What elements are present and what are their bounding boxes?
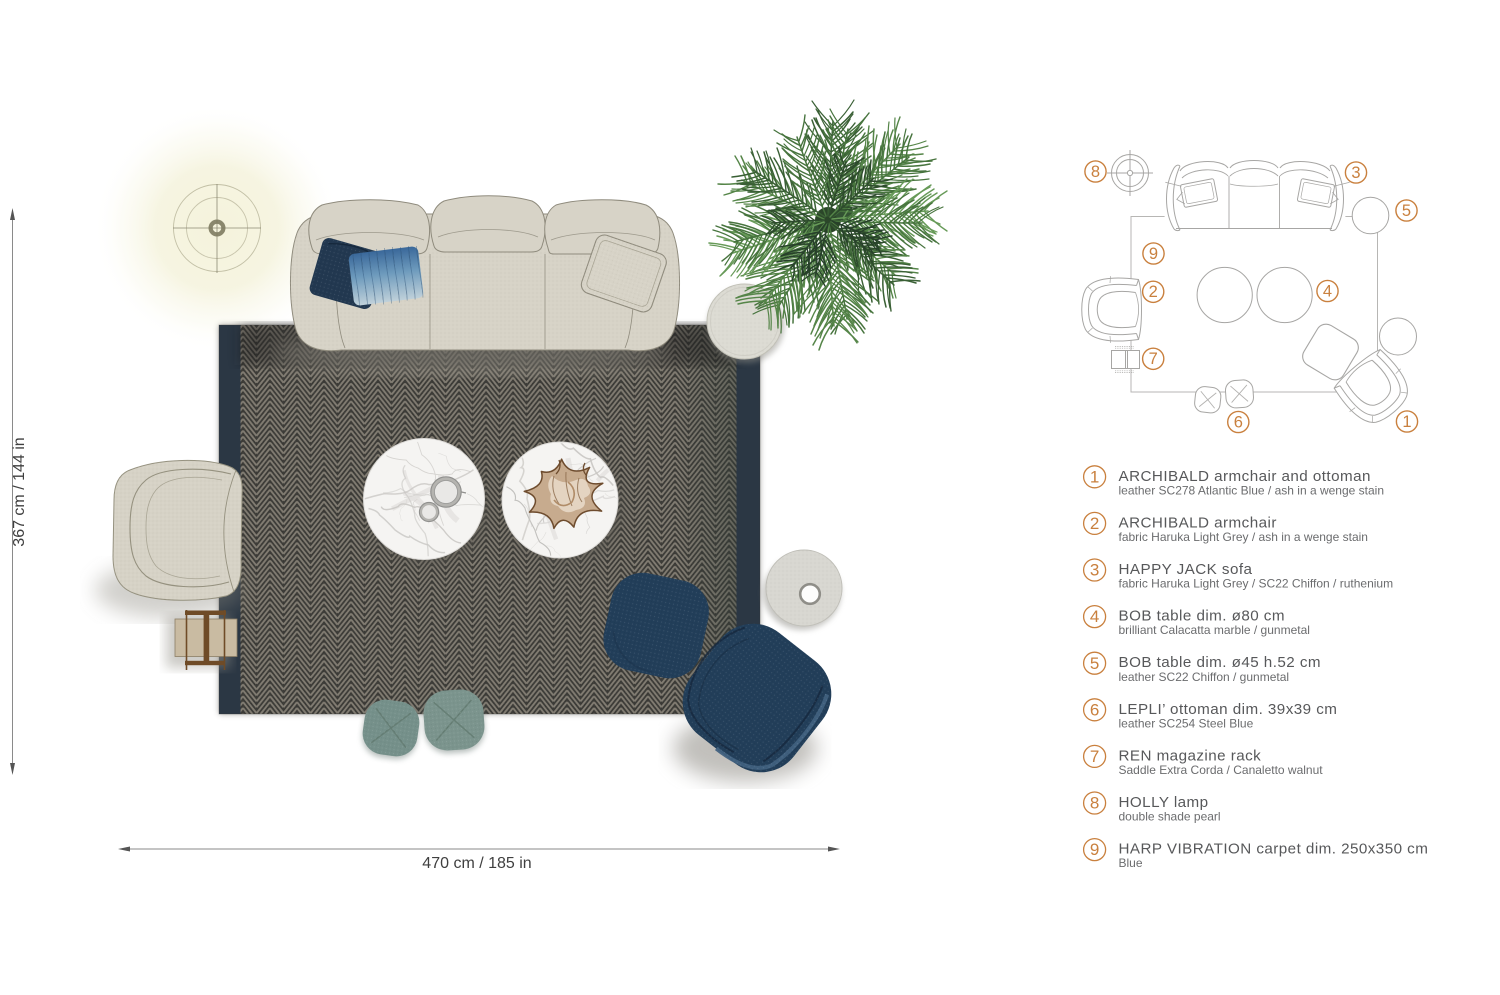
svg-text:367 cm / 144 in: 367 cm / 144 in	[11, 437, 28, 546]
svg-text:HARP VIBRATION carpet dim. 250: HARP VIBRATION carpet dim. 250x350 cm	[1119, 841, 1429, 858]
svg-text:ARCHIBALD armchair and ottoman: ARCHIBALD armchair and ottoman	[1119, 468, 1371, 485]
svg-text:4: 4	[1323, 282, 1332, 300]
svg-text:470 cm / 185 in: 470 cm / 185 in	[422, 855, 531, 872]
svg-text:7: 7	[1090, 747, 1099, 766]
svg-text:3: 3	[1090, 561, 1099, 580]
svg-text:1: 1	[1090, 467, 1099, 486]
svg-text:5: 5	[1090, 654, 1099, 673]
svg-text:brilliant Calacatta marble / g: brilliant Calacatta marble / gunmetal	[1119, 623, 1310, 637]
svg-text:ARCHIBALD armchair: ARCHIBALD armchair	[1119, 514, 1277, 531]
svg-text:6: 6	[1090, 700, 1099, 719]
svg-text:3: 3	[1351, 164, 1360, 182]
svg-text:HOLLY lamp: HOLLY lamp	[1119, 794, 1209, 811]
svg-text:2: 2	[1149, 283, 1158, 301]
svg-text:double shade pearl: double shade pearl	[1119, 810, 1221, 824]
svg-text:8: 8	[1091, 163, 1100, 181]
svg-text:8: 8	[1090, 794, 1099, 813]
svg-text:LEPLI’ ottoman dim. 39x39 cm: LEPLI’ ottoman dim. 39x39 cm	[1119, 701, 1338, 718]
svg-text:4: 4	[1090, 607, 1099, 626]
svg-text:9: 9	[1149, 245, 1158, 263]
svg-text:leather SC22 Chiffon / gunmeta: leather SC22 Chiffon / gunmetal	[1119, 670, 1290, 684]
svg-text:Blue: Blue	[1119, 856, 1143, 870]
svg-text:6: 6	[1234, 413, 1243, 431]
svg-text:1: 1	[1402, 413, 1411, 431]
svg-text:HAPPY JACK sofa: HAPPY JACK sofa	[1119, 561, 1253, 578]
svg-text:7: 7	[1149, 350, 1158, 368]
svg-text:5: 5	[1402, 202, 1411, 220]
svg-text:2: 2	[1090, 514, 1099, 533]
svg-text:leather SC254 Steel Blue: leather SC254 Steel Blue	[1119, 716, 1254, 730]
svg-text:Saddle Extra Corda / Canaletto: Saddle Extra Corda / Canaletto walnut	[1119, 763, 1324, 777]
svg-text:leather SC278 Atlantic Blue /: leather SC278 Atlantic Blue / ash in a w…	[1119, 483, 1385, 497]
svg-text:9: 9	[1090, 840, 1099, 859]
svg-text:fabric Haruka Light Grey / ash: fabric Haruka Light Grey / ash in a weng…	[1119, 530, 1368, 544]
svg-text:BOB table dim. ø80 cm: BOB table dim. ø80 cm	[1119, 608, 1285, 625]
svg-text:REN magazine rack: REN magazine rack	[1119, 747, 1262, 764]
svg-text:fabric Haruka Light Grey / SC2: fabric Haruka Light Grey / SC22 Chiffon …	[1119, 577, 1394, 591]
svg-text:BOB table dim. ø45 h.52 cm: BOB table dim. ø45 h.52 cm	[1119, 654, 1321, 671]
